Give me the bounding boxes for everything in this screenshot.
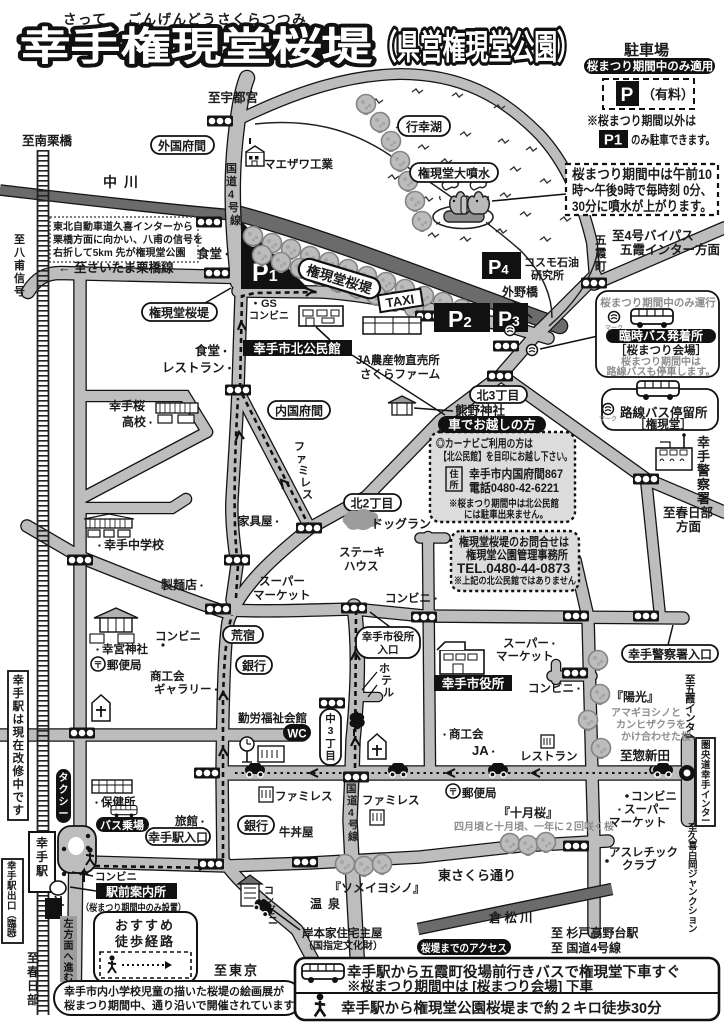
svg-text:外野橋: 外野橋 xyxy=(502,284,539,299)
svg-text:ァ: ァ xyxy=(296,453,307,465)
svg-text:勤労福祉会館: 勤労福祉会館 xyxy=(238,711,307,725)
svg-text:住: 住 xyxy=(449,468,458,479)
svg-text:※桜まつり期間中は北公民館: ※桜まつり期間中は北公民館 xyxy=(449,497,559,510)
svg-text:時〜午後9時で毎時刻 0分、: 時〜午後9時で毎時刻 0分、 xyxy=(572,182,712,198)
svg-text:レ: レ xyxy=(300,477,311,489)
svg-text:幸: 幸 xyxy=(36,835,48,850)
svg-text:倉松川: 倉松川 xyxy=(488,910,536,925)
svg-text:バス乗場: バス乗場 xyxy=(100,818,144,832)
svg-text:桜まつり期間中のみ運行: 桜まつり期間中のみ運行 xyxy=(600,296,716,309)
svg-text:『ソメイヨシノ』: 『ソメイヨシノ』 xyxy=(329,880,425,895)
svg-text:至南栗橋: 至南栗橋 xyxy=(22,133,73,148)
svg-text:ー: ー xyxy=(701,816,711,827)
svg-text:4: 4 xyxy=(348,807,354,819)
svg-text:コンビニ・: コンビニ・ xyxy=(385,591,440,605)
svg-text:タ: タ xyxy=(59,772,69,784)
svg-text:幸手市北公民館: 幸手市北公民館 xyxy=(253,341,341,356)
svg-text:中: 中 xyxy=(325,712,336,725)
svg-text:在: 在 xyxy=(13,738,25,752)
svg-text:署: 署 xyxy=(697,491,710,506)
svg-text:〒: 〒 xyxy=(93,660,102,670)
svg-text:ニ: ニ xyxy=(268,916,278,927)
svg-text:銀行: 銀行 xyxy=(243,818,268,833)
svg-text:マーケット: マーケット xyxy=(609,816,667,829)
svg-text:〒: 〒 xyxy=(448,787,457,797)
svg-text:には駐車出来ません。: には駐車出来ません。 xyxy=(464,508,548,521)
svg-text:徒歩経路: 徒歩経路 xyxy=(114,934,175,949)
svg-text:ル: ル xyxy=(383,687,394,699)
svg-text:駅: 駅 xyxy=(12,700,25,713)
svg-text:東北自動車道久喜インターから: 東北自動車道久喜インターから xyxy=(53,220,193,233)
svg-text:車でお越しの方: 車でお越しの方 xyxy=(448,417,536,432)
svg-text:のみ駐車できます。: のみ駐車できます。 xyxy=(631,132,715,147)
svg-text:日: 日 xyxy=(27,979,39,993)
svg-text:権現堂公園管理事務所: 権現堂公園管理事務所 xyxy=(466,547,568,562)
svg-text:さくらファーム: さくらファーム xyxy=(360,368,441,381)
svg-text:幸手市内国府間867: 幸手市内国府間867 xyxy=(469,466,563,481)
svg-text:線: 線 xyxy=(230,213,241,227)
svg-text:権現堂桜堤のお問合せは: 権現堂桜堤のお問合せは xyxy=(459,534,569,549)
svg-text:ク: ク xyxy=(59,784,69,796)
svg-text:幸手駅入口: 幸手駅入口 xyxy=(148,830,208,845)
svg-text:手: 手 xyxy=(697,449,710,464)
svg-text:信: 信 xyxy=(14,271,25,285)
svg-text:ン: ン xyxy=(688,924,698,935)
svg-text:幸手市役所: 幸手市役所 xyxy=(442,676,505,691)
svg-text:霞: 霞 xyxy=(595,247,607,260)
svg-text:（県営権現堂公園）: （県営権現堂公園） xyxy=(374,28,580,67)
svg-text:右折して5km 先が権現堂公園: 右折して5km 先が権現堂公園 xyxy=(52,246,186,259)
svg-text:ミ: ミ xyxy=(298,465,309,477)
svg-text:至 杉戸高野台駅: 至 杉戸高野台駅 xyxy=(551,925,639,940)
svg-text:※桜まつり期間中は [桜まつり会場] 下車: ※桜まつり期間中は [桜まつり会場] 下車 xyxy=(347,978,593,994)
svg-text:コンビニ: コンビニ xyxy=(95,870,137,883)
svg-text:方: 方 xyxy=(64,928,74,941)
svg-text:［権現堂］: ［権現堂］ xyxy=(634,417,692,431)
svg-text:方面: 方面 xyxy=(676,519,702,534)
svg-text:幸手駅から権現堂公園桜堤まで約２キロ徒歩30分: 幸手駅から権現堂公園桜堤まで約２キロ徒歩30分 xyxy=(341,999,662,1017)
svg-text:警: 警 xyxy=(697,463,710,478)
svg-text:所: 所 xyxy=(449,479,458,490)
svg-text:フ: フ xyxy=(294,441,305,453)
svg-text:五霞インター方面: 五霞インター方面 xyxy=(620,242,721,257)
svg-text:ホ: ホ xyxy=(379,662,390,675)
svg-text:P: P xyxy=(621,85,634,106)
svg-text:手: 手 xyxy=(36,849,48,864)
svg-text:TEL.0480-44-0873: TEL.0480-44-0873 xyxy=(457,561,571,576)
svg-text:レストラン: レストラン xyxy=(520,750,578,763)
svg-text:八: 八 xyxy=(13,246,26,259)
svg-text:目: 目 xyxy=(325,750,336,762)
svg-text:桜まつり期間中のみ適用: 桜まつり期間中のみ適用 xyxy=(587,59,714,73)
svg-text:カンヒザクラを: カンヒザクラを xyxy=(616,719,686,731)
svg-text:スーパー: スーパー xyxy=(259,575,305,588)
svg-text:修: 修 xyxy=(12,764,25,778)
svg-text:察: 察 xyxy=(697,477,711,492)
svg-text:権現堂桜堤: 権現堂桜堤 xyxy=(149,305,210,320)
svg-text:中川: 中川 xyxy=(103,174,145,190)
svg-text:岸本家住宅主屋: 岸本家住宅主屋 xyxy=(302,926,383,940)
svg-text:至4号バイパス: 至4号バイパス xyxy=(612,228,694,243)
svg-text:路線バス停留所: 路線バス停留所 xyxy=(620,405,708,420)
svg-text:4: 4 xyxy=(228,189,235,201)
svg-text:3: 3 xyxy=(328,725,334,737)
svg-text:JA農産物直売所: JA農産物直売所 xyxy=(356,353,440,367)
svg-text:国: 国 xyxy=(346,783,357,795)
svg-text:線: 線 xyxy=(348,830,359,843)
svg-text:◎カーナビご利用の方は: ◎カーナビご利用の方は xyxy=(436,436,533,450)
svg-text:［桜まつり会場］: ［桜まつり会場］ xyxy=(615,343,707,357)
svg-text:駅前案内所: 駅前案内所 xyxy=(105,884,166,899)
svg-text:コンビニ・: コンビニ・ xyxy=(528,681,583,695)
svg-text:町: 町 xyxy=(595,260,607,273)
svg-text:行幸湖: 行幸湖 xyxy=(405,119,442,134)
svg-text:部: 部 xyxy=(27,992,39,1007)
svg-text:中: 中 xyxy=(13,777,25,791)
svg-text:桜まつり期間中、通り沿いで開催されています。: 桜まつり期間中、通り沿いで開催されています。 xyxy=(64,998,304,1012)
svg-text:至: 至 xyxy=(14,233,25,246)
svg-text:北2丁目: 北2丁目 xyxy=(351,496,394,511)
svg-text:号: 号 xyxy=(14,285,25,298)
svg-text:スーパー・: スーパー・ xyxy=(503,637,558,650)
svg-text:マーケット: マーケット xyxy=(253,589,311,602)
svg-text:シ: シ xyxy=(59,796,69,808)
svg-text:← 至さいたま栗橋線: ← 至さいたま栗橋線 xyxy=(58,260,174,275)
svg-text:『陽光』: 『陽光』 xyxy=(611,689,659,704)
svg-text:手: 手 xyxy=(13,686,25,700)
svg-text:道: 道 xyxy=(226,174,237,188)
svg-text:熊野神社: 熊野神社 xyxy=(455,403,506,418)
svg-text:幸: 幸 xyxy=(13,673,25,687)
svg-text:家具屋・: 家具屋・ xyxy=(238,514,282,528)
svg-text:ー: ー xyxy=(59,809,69,820)
svg-text:温泉: 温泉 xyxy=(310,896,346,911)
svg-text:道: 道 xyxy=(347,794,358,807)
svg-text:【北公民館】を目印にお越し下さい。: 【北公民館】を目印にお越し下さい。 xyxy=(439,449,572,463)
svg-text:銀行: 銀行 xyxy=(241,658,266,673)
svg-text:︶: ︶ xyxy=(6,934,17,946)
svg-text:（有料）: （有料） xyxy=(642,87,694,102)
svg-text:レストラン・: レストラン・ xyxy=(162,361,235,375)
svg-text:郵便局: 郵便局 xyxy=(107,658,142,672)
svg-text:『十月桜』: 『十月桜』 xyxy=(498,805,558,820)
svg-text:ハウス: ハウス xyxy=(344,560,379,573)
svg-text:駅: 駅 xyxy=(35,864,49,878)
svg-text:ー: ー xyxy=(685,732,696,744)
svg-text:※上記の北公民館ではありません: ※上記の北公民館ではありません xyxy=(454,575,576,587)
svg-text:ファミレス: ファミレス xyxy=(275,790,333,803)
svg-text:マーケット: マーケット xyxy=(496,650,554,663)
svg-text:入口: 入口 xyxy=(378,644,399,656)
svg-text:・幸手中学校: ・幸手中学校 xyxy=(95,537,165,552)
svg-text:五: 五 xyxy=(595,234,607,247)
svg-text:至: 至 xyxy=(27,951,39,965)
svg-text:で: で xyxy=(13,791,25,804)
svg-text:桜まつり期間中は午前10: 桜まつり期間中は午前10 xyxy=(572,166,712,182)
svg-text:権現堂大噴水: 権現堂大噴水 xyxy=(418,166,491,181)
svg-text:研究所: 研究所 xyxy=(531,268,564,282)
svg-text:駐車場: 駐車場 xyxy=(624,41,669,59)
svg-text:幸手権現堂桜堤: 幸手権現堂桜堤 xyxy=(20,26,373,69)
svg-text:現: 現 xyxy=(13,726,25,739)
svg-text:荒宿: 荒宿 xyxy=(230,628,255,643)
svg-text:郵便局: 郵便局 xyxy=(462,786,497,800)
svg-text:・GS: ・GS xyxy=(250,298,277,310)
svg-text:アスレチック: アスレチック xyxy=(609,846,678,859)
svg-text:コンビニ: コンビニ xyxy=(155,629,201,643)
svg-text:商工会: 商工会 xyxy=(150,669,185,683)
svg-text:クラブ: クラブ xyxy=(622,858,657,872)
svg-text:ドッグラン: ドッグラン xyxy=(371,516,431,531)
svg-text:P1: P1 xyxy=(604,132,622,149)
svg-text:路線バスも停車します。: 路線バスも停車します。 xyxy=(607,365,716,378)
svg-text:幸手警察署入口: 幸手警察署入口 xyxy=(628,647,712,662)
svg-text:ステーキ: ステーキ xyxy=(339,546,385,559)
svg-text:おすすめ: おすすめ xyxy=(115,918,175,933)
svg-text:幸手市内小学校児童の描いた桜堤の絵画展が: 幸手市内小学校児童の描いた桜堤の絵画展が xyxy=(64,984,284,998)
svg-text:さって ごんげんどうさくらつつみ: さって ごんげんどうさくらつつみ xyxy=(63,11,307,27)
svg-text:左: 左 xyxy=(63,917,74,930)
svg-text:（国指定文化財）: （国指定文化財） xyxy=(303,939,383,952)
svg-text:かけ合わせた桜: かけ合わせた桜 xyxy=(621,730,691,743)
svg-text:・幸宮神社: ・幸宮神社 xyxy=(93,642,149,656)
svg-text:ギャラリー・: ギャラリー・ xyxy=(154,682,221,696)
svg-text:コンビニ: コンビニ xyxy=(631,789,677,803)
svg-text:至宇都宮: 至宇都宮 xyxy=(208,90,258,105)
svg-text:は: は xyxy=(13,713,25,726)
svg-text:へ: へ xyxy=(64,952,74,963)
svg-text:四月頃と十月頃、一年に２回咲く桜: 四月頃と十月頃、一年に２回咲く桜 xyxy=(454,820,614,833)
svg-text:改: 改 xyxy=(13,751,25,765)
svg-text:コスモ石油: コスモ石油 xyxy=(524,255,579,269)
svg-text:幸: 幸 xyxy=(697,435,710,450)
svg-text:幸手桜: 幸手桜 xyxy=(109,398,145,413)
svg-text:北3丁目: 北3丁目 xyxy=(477,388,520,403)
svg-text:桜堤までのアクセス: 桜堤までのアクセス xyxy=(421,942,507,955)
svg-text:※桜まつり期間以外は: ※桜まつり期間以外は xyxy=(587,113,696,128)
svg-text:・スーパー: ・スーパー xyxy=(615,803,670,816)
svg-text:ファミレス: ファミレス xyxy=(362,794,420,807)
svg-text:幸手市役所: 幸手市役所 xyxy=(362,630,415,643)
svg-text:30分に噴水が上がります。: 30分に噴水が上がります。 xyxy=(572,198,712,214)
svg-text:テ: テ xyxy=(381,674,392,687)
svg-text:WC: WC xyxy=(287,729,306,741)
svg-text:臨時バス発着所: 臨時バス発着所 xyxy=(619,328,703,343)
svg-text:す: す xyxy=(13,804,25,817)
svg-text:号: 号 xyxy=(348,819,359,831)
svg-text:牛丼屋: 牛丼屋 xyxy=(279,825,314,839)
svg-text:至惣新田: 至惣新田 xyxy=(620,748,670,763)
svg-text:至 国道4号線: 至 国道4号線 xyxy=(551,940,621,955)
svg-text:至東京: 至東京 xyxy=(214,963,259,978)
svg-text:甫: 甫 xyxy=(14,258,25,272)
svg-text:ス: ス xyxy=(302,489,313,501)
svg-text:外国府間: 外国府間 xyxy=(158,138,206,153)
svg-text:電話0480-42-6221: 電話0480-42-6221 xyxy=(469,480,559,495)
svg-text:号: 号 xyxy=(228,201,239,214)
svg-text:旅館・: 旅館・ xyxy=(175,814,207,828)
svg-text:マーク: マーク xyxy=(599,415,617,423)
svg-text:国: 国 xyxy=(226,162,237,175)
svg-text:丁: 丁 xyxy=(325,738,336,750)
svg-text:至春日部: 至春日部 xyxy=(663,505,714,520)
svg-text:面: 面 xyxy=(64,940,74,952)
svg-text:・商工会: ・商工会 xyxy=(440,727,484,741)
svg-text:内国府間: 内国府間 xyxy=(275,403,323,418)
svg-text:東さくら通り: 東さくら通り xyxy=(438,868,516,883)
svg-text:春: 春 xyxy=(26,964,40,979)
svg-text:栗橋方面に向かい、八甫の信号を: 栗橋方面に向かい、八甫の信号を xyxy=(53,233,203,246)
svg-text:マエザワ工業: マエザワ工業 xyxy=(264,157,333,171)
svg-text:アマギヨシノと: アマギヨシノと xyxy=(611,706,681,719)
svg-text:コンビニ: コンビニ xyxy=(249,309,289,322)
